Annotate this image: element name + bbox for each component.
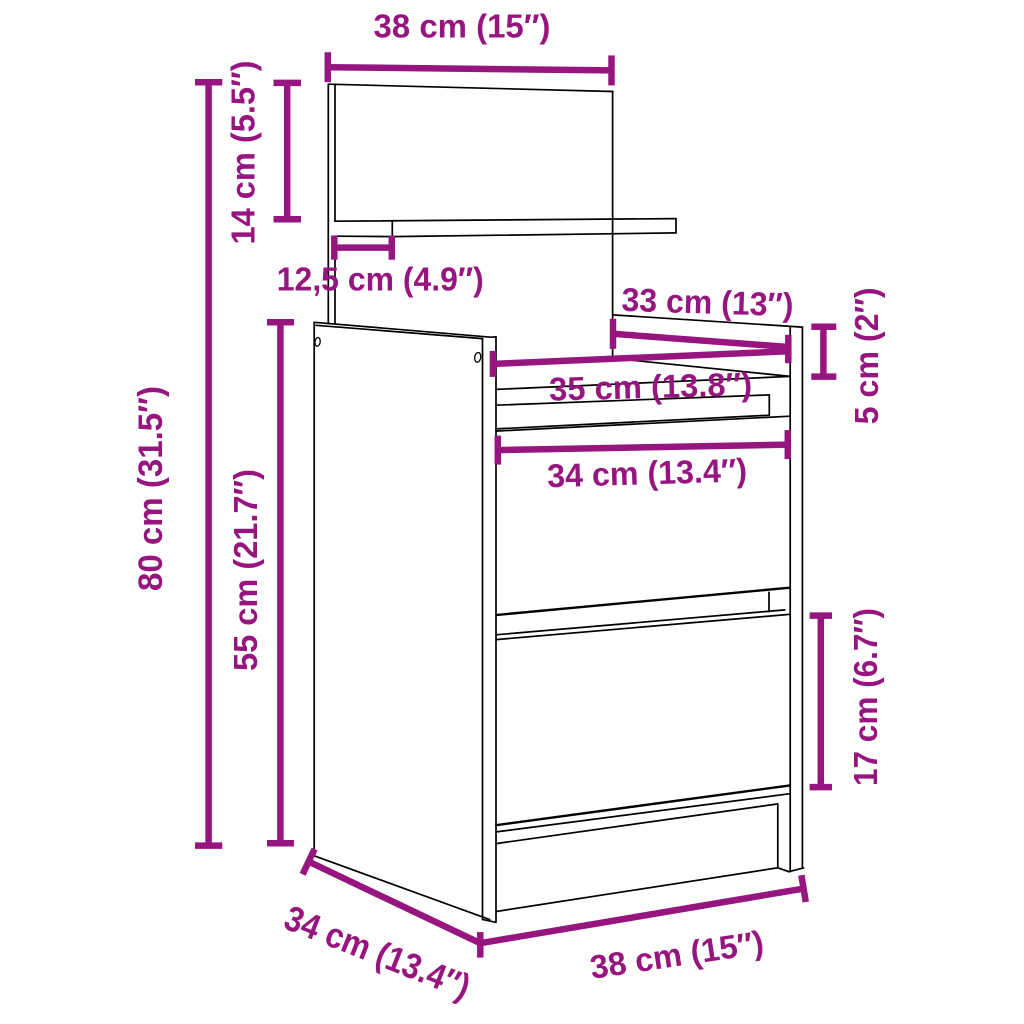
svg-text:80 cm (31.5″): 80 cm (31.5″): [132, 386, 170, 591]
svg-text:17 cm (6.7″): 17 cm (6.7″): [847, 608, 884, 786]
svg-text:14 cm (5.5″): 14 cm (5.5″): [225, 61, 262, 245]
svg-text:38 cm (15″): 38 cm (15″): [374, 8, 551, 45]
svg-text:35 cm (13.8″): 35 cm (13.8″): [549, 365, 753, 407]
svg-text:33 cm (13″): 33 cm (13″): [621, 281, 794, 323]
svg-text:34 cm (13.4″): 34 cm (13.4″): [547, 451, 748, 494]
svg-text:12,5 cm (4.9″): 12,5 cm (4.9″): [277, 261, 484, 298]
svg-text:55 cm (21.7″): 55 cm (21.7″): [227, 469, 264, 671]
svg-text:5 cm (2″): 5 cm (2″): [848, 287, 885, 424]
